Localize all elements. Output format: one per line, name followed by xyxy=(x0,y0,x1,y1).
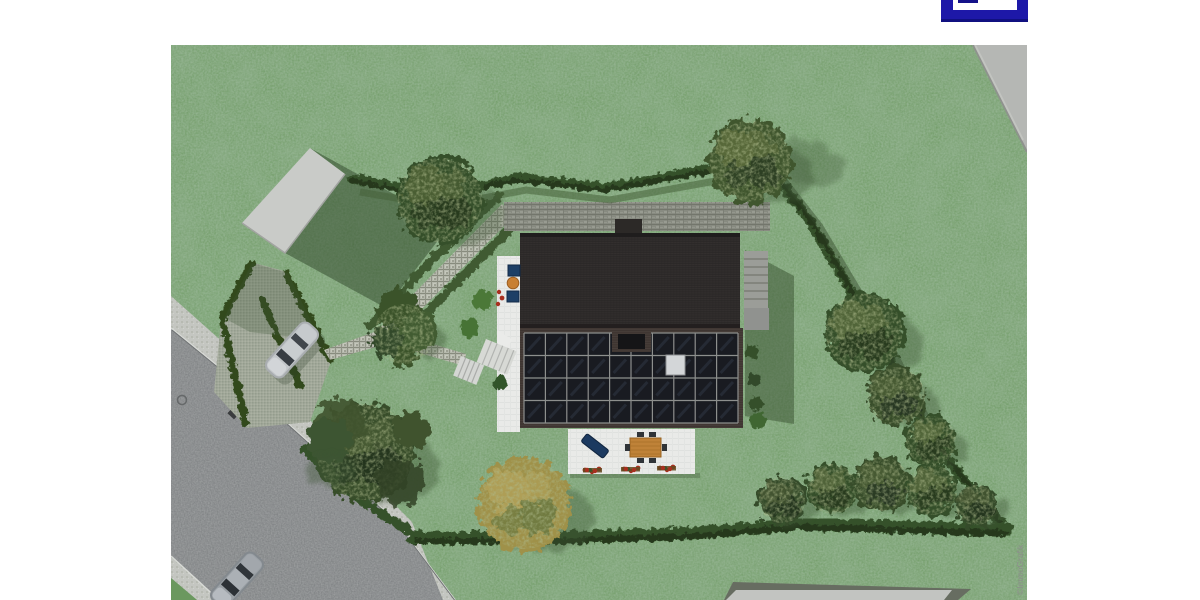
svg-text:©ImmoGrafik: ©ImmoGrafik xyxy=(1015,544,1025,595)
